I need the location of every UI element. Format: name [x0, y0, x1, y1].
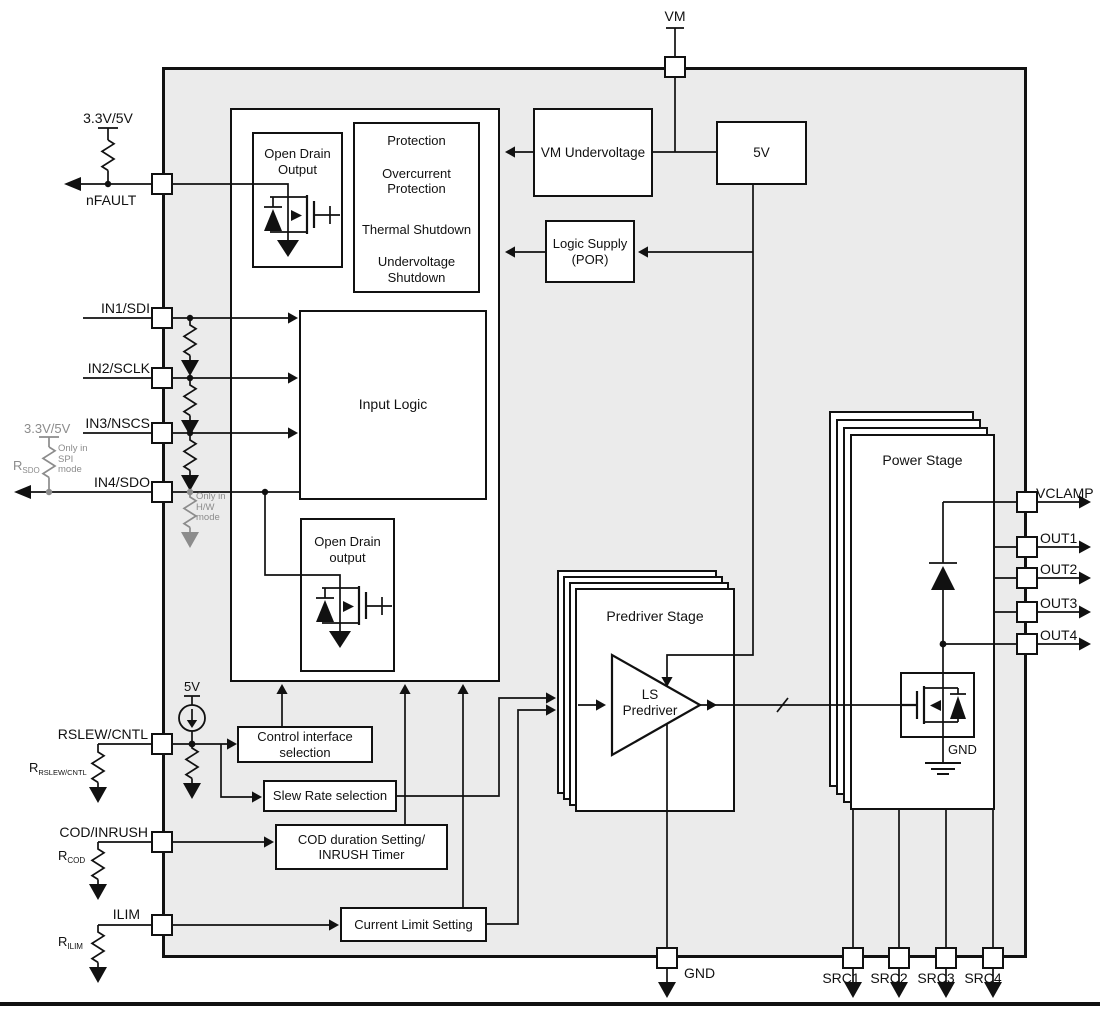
- vclamp-clamp-path: [929, 502, 1017, 763]
- cod-up-arrowhead: [399, 684, 410, 694]
- rslew-resistor-label: RRSLEW/CNTL: [29, 760, 87, 780]
- pin-in4: [152, 482, 172, 502]
- nfault-pullup-lead: [98, 128, 118, 140]
- od-bottom-gnd-arrow: [329, 631, 351, 648]
- rilim-gnd-arrow: [89, 967, 107, 983]
- pin-in3: [152, 423, 172, 443]
- src4-pin-label: SRC4: [960, 971, 1006, 986]
- rslew-gnd-arrow: [89, 787, 107, 803]
- out1-pin-label: OUT1: [1040, 531, 1077, 546]
- pin-vm: [665, 57, 685, 77]
- nfault-supply-label: 3.3V/5V: [79, 111, 137, 126]
- rcod-resistor-label: RCOD: [58, 848, 85, 868]
- junction-dot: [262, 489, 268, 495]
- internal-5v-label: 5V: [178, 679, 206, 694]
- pin-out4: [1017, 634, 1037, 654]
- pin-cod: [152, 832, 172, 852]
- in2-arrowhead: [288, 372, 298, 383]
- in3-arrowhead: [288, 427, 298, 438]
- junction-dot-gray: [187, 489, 193, 495]
- in1-gnd-arrow: [181, 360, 199, 376]
- wiring-layer: [0, 0, 1100, 1011]
- ls-predriver-label: LS Predriver: [605, 687, 695, 719]
- current-source-arrowhead: [187, 720, 197, 728]
- junction-dot: [105, 181, 111, 187]
- gnd-pin-label: GND: [684, 966, 715, 981]
- ilim-predriver-arrowhead: [546, 704, 556, 715]
- nfault-pullup-resistor: [102, 140, 114, 184]
- pin-in1: [152, 308, 172, 328]
- clamp-diode: [931, 566, 955, 590]
- internal-gnd-arrow: [183, 783, 201, 799]
- junction-dot: [189, 741, 196, 748]
- ilim-arrowhead: [329, 919, 339, 930]
- in1-pulldown-resistor: [184, 318, 196, 360]
- ilim-to-predriver: [487, 710, 550, 924]
- ilim-up-arrowhead: [457, 684, 468, 694]
- cod-pin-label: COD/INRUSH: [28, 825, 148, 840]
- pin-src1: [843, 948, 863, 968]
- internal-gnd-label: GND: [948, 742, 977, 757]
- vmuv-arrowhead: [505, 146, 515, 157]
- junction-dot: [940, 641, 947, 648]
- ctrl-up-arrowhead: [276, 684, 287, 694]
- od-top-source-arrow: [291, 210, 302, 221]
- out2-arrowhead: [1079, 572, 1091, 585]
- sdo-supply-label: 3.3V/5V: [24, 421, 70, 436]
- od-bottom-source-arrow: [343, 601, 354, 612]
- od-bottom-body-diode: [316, 600, 334, 622]
- out-wires: [943, 547, 1017, 644]
- in1-arrowhead: [288, 312, 298, 323]
- gnd-symbol: [925, 763, 961, 774]
- hw-gnd-arrow-gray: [181, 532, 199, 548]
- in3-gnd-arrow: [181, 475, 199, 491]
- 5v-logic-arrowhead: [638, 246, 648, 257]
- pin-out1: [1017, 537, 1037, 557]
- sdo-left-arrow: [14, 485, 31, 499]
- src-wires: [853, 810, 993, 948]
- out4-pin-label: OUT4: [1040, 628, 1077, 643]
- in2-pin-label: IN2/SCLK: [56, 361, 150, 376]
- 5v-down-wire: [667, 185, 753, 682]
- od-top-body-diode: [264, 209, 282, 231]
- out4-arrowhead: [1079, 638, 1091, 651]
- nfault-left-arrow: [64, 177, 81, 191]
- out3-pin-label: OUT3: [1040, 596, 1077, 611]
- pin-nfault: [152, 174, 172, 194]
- src1-pin-label: SRC1: [818, 971, 864, 986]
- rsdo-label: RSDO: [13, 458, 40, 478]
- od-top-gnd-arrow: [277, 240, 299, 257]
- bottom-rule: [0, 1002, 1100, 1006]
- vm-wire: [653, 28, 716, 152]
- rcod-gnd-arrow: [89, 884, 107, 900]
- gnd-pin-arrow: [658, 982, 676, 998]
- junction-dot: [187, 430, 193, 436]
- slew-arrowhead: [252, 791, 262, 802]
- in4-pin-label: IN4/SDO: [56, 475, 150, 490]
- pin-out2: [1017, 568, 1037, 588]
- slew-branch: [221, 744, 258, 797]
- cod-arrowhead: [264, 836, 274, 847]
- logic-arrowhead: [505, 246, 515, 257]
- pin-ilim: [152, 915, 172, 935]
- pin-rslew: [152, 734, 172, 754]
- in3-pulldown-resistor: [184, 433, 196, 475]
- rslew-pin-label: RSLEW/CNTL: [30, 727, 148, 742]
- pin-gnd: [657, 948, 677, 968]
- pin-vclamp: [1017, 492, 1037, 512]
- cs-5v-lead: [184, 696, 200, 705]
- pin-src4: [983, 948, 1003, 968]
- cod-wire: [92, 842, 270, 884]
- pin-src2: [889, 948, 909, 968]
- out3-arrowhead: [1079, 606, 1091, 619]
- in4-opendrain-branch: [265, 492, 340, 588]
- junction-dot-gray: [46, 489, 52, 495]
- power-gate: [900, 691, 917, 719]
- power-source-arrow: [930, 700, 941, 711]
- junction-dot: [187, 315, 193, 321]
- slew-predriver-arrowhead: [546, 692, 556, 703]
- power-body-diode: [950, 696, 966, 719]
- pin-squares: [152, 57, 1037, 968]
- spi-mode-note: Only in SPI mode: [58, 444, 88, 476]
- ctrl-arrowhead: [227, 738, 237, 749]
- hw-mode-note: Only in H/W mode: [196, 492, 226, 524]
- out1-arrowhead: [1079, 541, 1091, 554]
- ilim-wire: [92, 925, 335, 967]
- block-diagram: Open Drain Output Protection Overcurrent…: [0, 0, 1100, 1011]
- junction-dot: [187, 375, 193, 381]
- pin-out3: [1017, 602, 1037, 622]
- src2-pin-label: SRC2: [866, 971, 912, 986]
- pin-src3: [936, 948, 956, 968]
- ilim-pin-label: ILIM: [45, 907, 140, 922]
- pin-in2: [152, 368, 172, 388]
- out2-pin-label: OUT2: [1040, 562, 1077, 577]
- in1-pin-label: IN1/SDI: [56, 301, 150, 316]
- src3-pin-label: SRC3: [913, 971, 959, 986]
- vclamp-pin-label: VCLAMP: [1036, 486, 1094, 501]
- vm-pin-label: VM: [652, 9, 698, 24]
- nfault-pin-label: nFAULT: [86, 193, 136, 208]
- internal-pulldown: [186, 731, 198, 783]
- slew-to-predriver: [397, 698, 550, 796]
- gray-fills: [46, 489, 199, 548]
- rilim-resistor-label: RILIM: [58, 934, 83, 954]
- predriver-out-arrowhead: [707, 699, 717, 710]
- in2-pulldown-resistor: [184, 378, 196, 420]
